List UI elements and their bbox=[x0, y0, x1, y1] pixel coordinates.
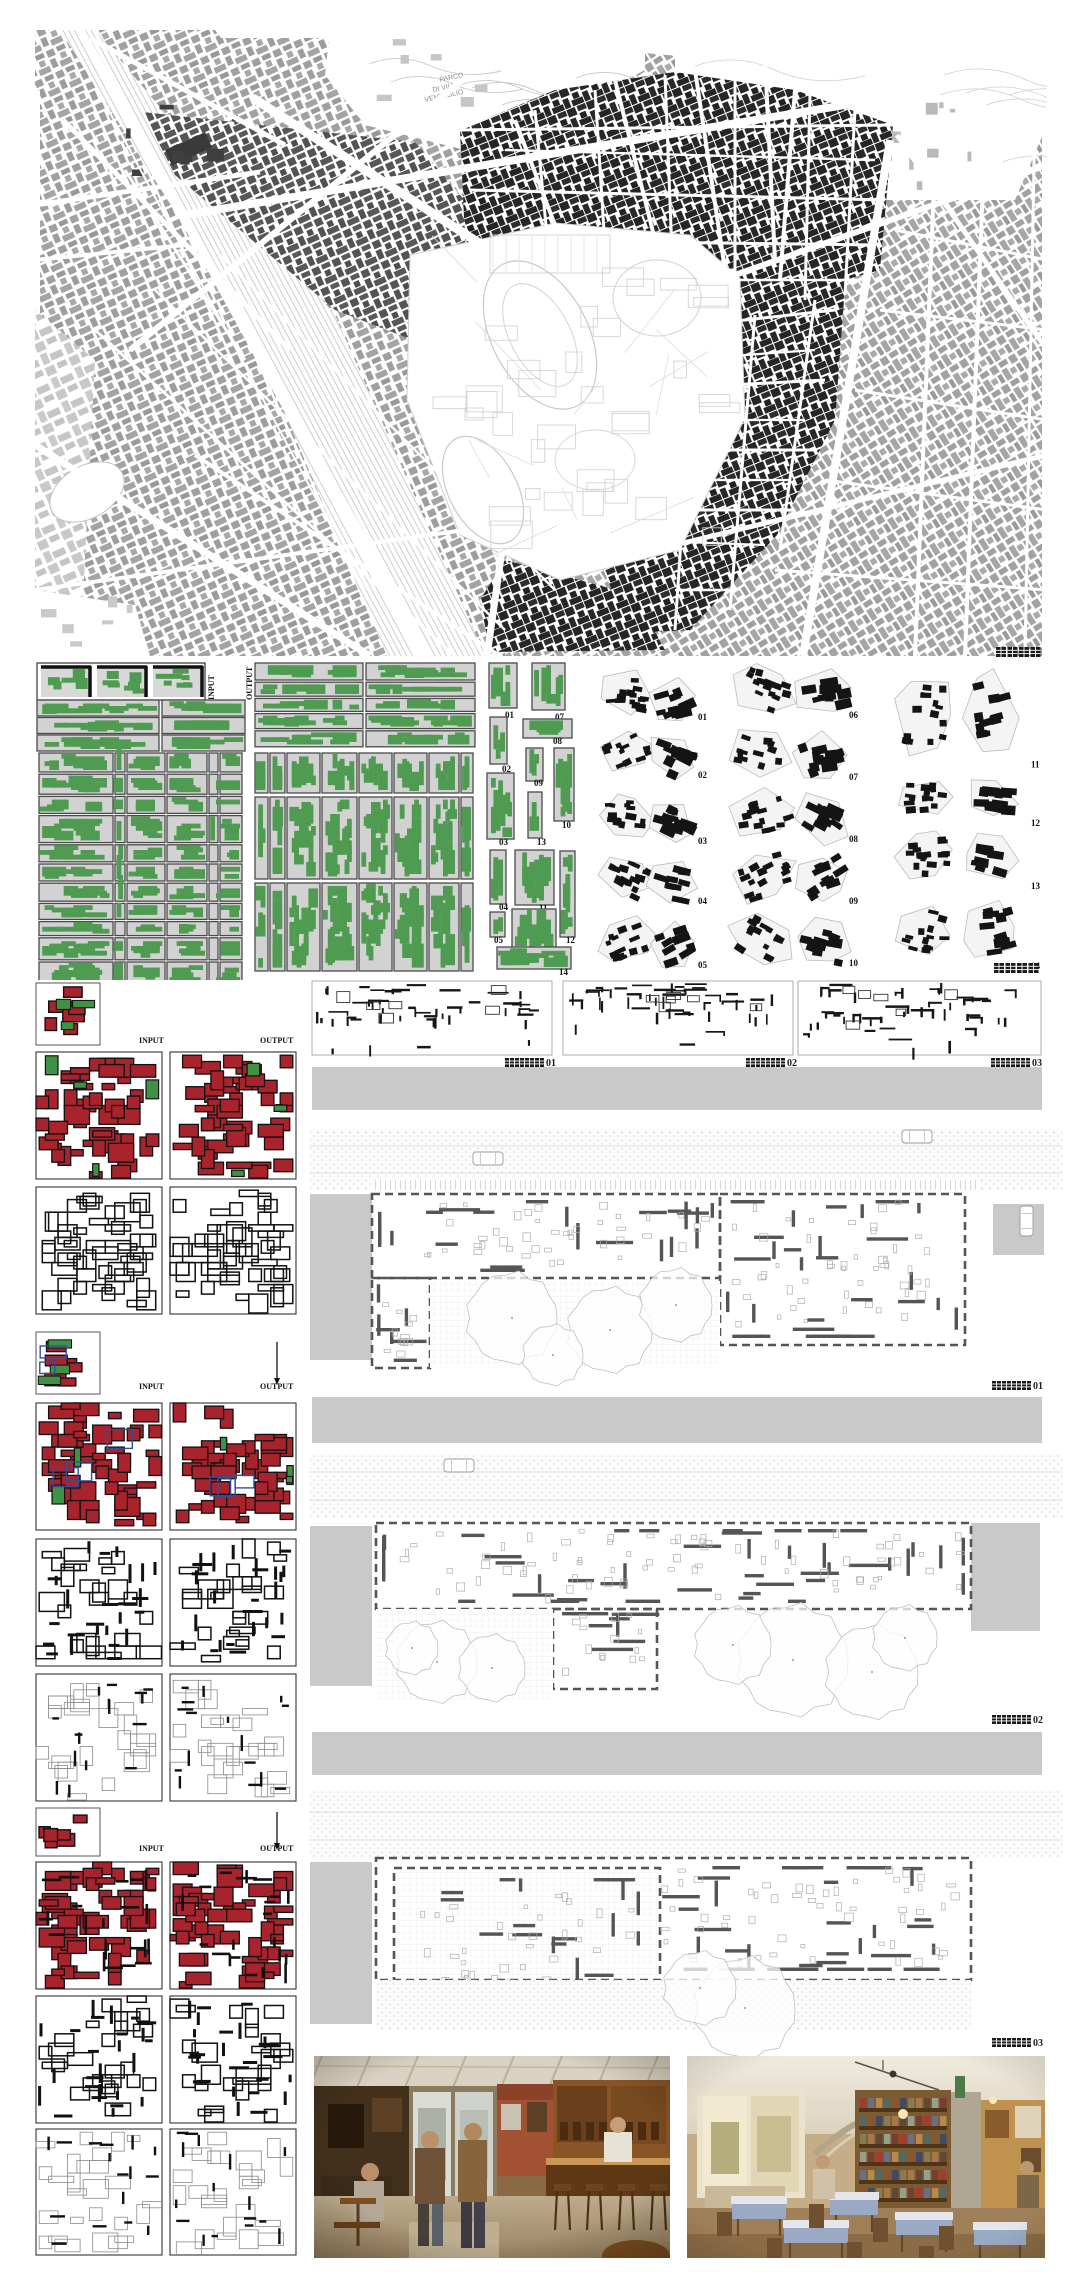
svg-text:11: 11 bbox=[1031, 760, 1040, 770]
svg-text:01: 01 bbox=[698, 712, 708, 722]
svg-text:03: 03 bbox=[1033, 2038, 1043, 2049]
svg-text:INPUT: INPUT bbox=[139, 1036, 165, 1045]
svg-text:08: 08 bbox=[553, 736, 563, 746]
svg-text:02: 02 bbox=[698, 770, 708, 780]
svg-text:05: 05 bbox=[698, 960, 708, 970]
svg-text:12: 12 bbox=[566, 935, 576, 945]
svg-text:02: 02 bbox=[1033, 1715, 1043, 1726]
svg-text:06: 06 bbox=[849, 710, 859, 720]
svg-text:OUTPUT: OUTPUT bbox=[260, 1382, 294, 1391]
svg-text:07: 07 bbox=[849, 772, 859, 782]
svg-text:09: 09 bbox=[849, 896, 859, 906]
svg-text:10: 10 bbox=[562, 820, 572, 830]
svg-text:01: 01 bbox=[1033, 1381, 1043, 1392]
svg-text:INPUT: INPUT bbox=[207, 674, 216, 700]
svg-text:OUTPUT: OUTPUT bbox=[245, 666, 254, 700]
svg-text:13: 13 bbox=[537, 837, 547, 847]
svg-text:12: 12 bbox=[1031, 818, 1041, 828]
svg-text:04: 04 bbox=[499, 902, 509, 912]
svg-text:09: 09 bbox=[534, 778, 544, 788]
svg-text:OUTPUT: OUTPUT bbox=[260, 1844, 294, 1853]
svg-text:INPUT: INPUT bbox=[139, 1844, 165, 1853]
svg-text:03: 03 bbox=[698, 836, 708, 846]
svg-text:14: 14 bbox=[559, 967, 569, 977]
svg-text:04: 04 bbox=[698, 896, 708, 906]
svg-text:08: 08 bbox=[849, 834, 859, 844]
svg-text:INPUT: INPUT bbox=[139, 1382, 165, 1391]
svg-text:05: 05 bbox=[494, 935, 504, 945]
svg-text:OUTPUT: OUTPUT bbox=[260, 1036, 294, 1045]
svg-text:13: 13 bbox=[1031, 881, 1041, 891]
svg-text:03: 03 bbox=[499, 837, 509, 847]
svg-text:10: 10 bbox=[849, 958, 859, 968]
